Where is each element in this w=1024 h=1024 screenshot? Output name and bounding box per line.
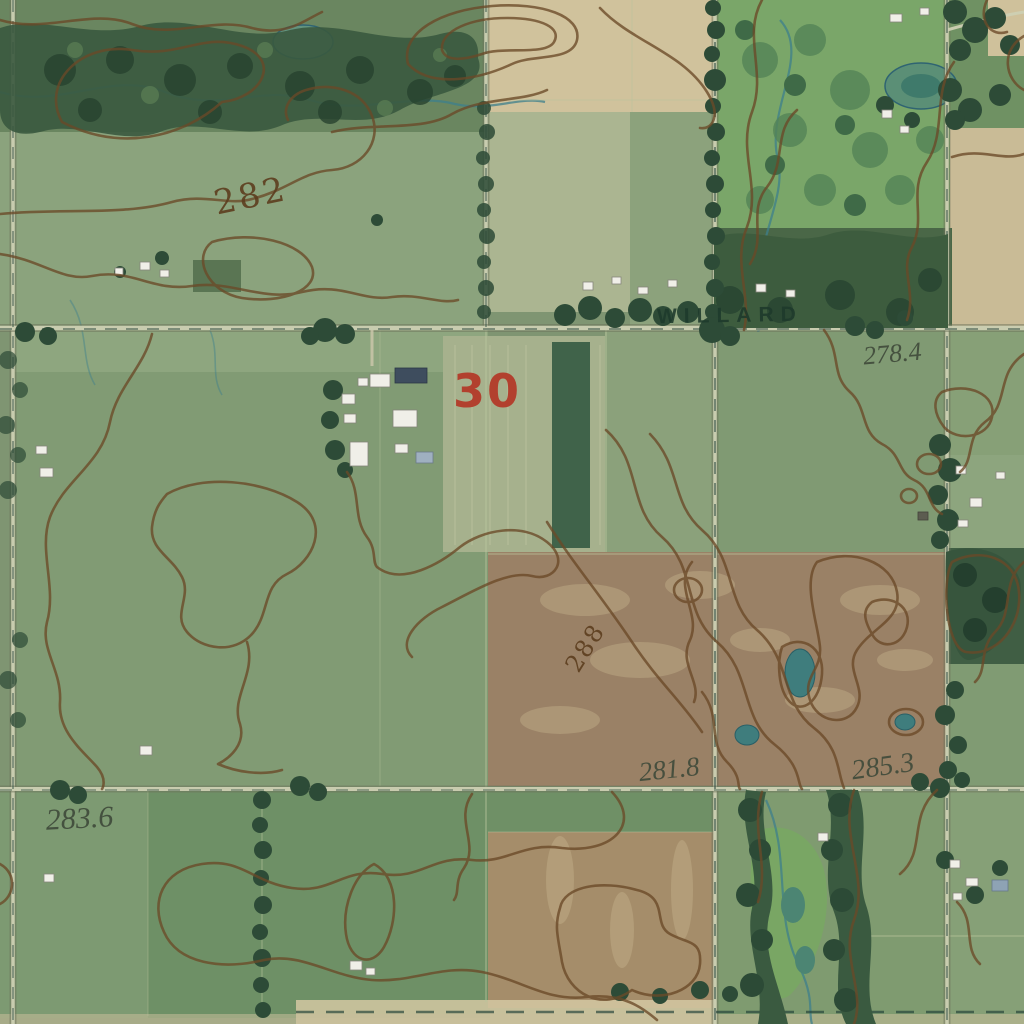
shed [918, 512, 928, 520]
section-number-label: 30 [453, 364, 521, 418]
spot-elevation-southwest: 283.6 [45, 800, 114, 836]
metal-roof-building [416, 452, 433, 463]
marsh-pond-1 [781, 887, 805, 923]
spot-elevation-south-center: 281.8 [637, 751, 701, 787]
pond-east-small [895, 714, 915, 730]
spot-elevation-northeast: 278.4 [862, 337, 923, 371]
dark-barn [395, 368, 427, 383]
blue-roof-building [992, 880, 1008, 891]
map-canvas[interactable]: 282 288 30 WILLARD 278.4 281.8 285.3 283… [0, 0, 1024, 1024]
road-name-label: WILLARD [657, 303, 803, 329]
pond-center-small [735, 725, 759, 745]
pond-northeast-deep [901, 74, 941, 98]
marsh-pond-2 [795, 946, 815, 974]
